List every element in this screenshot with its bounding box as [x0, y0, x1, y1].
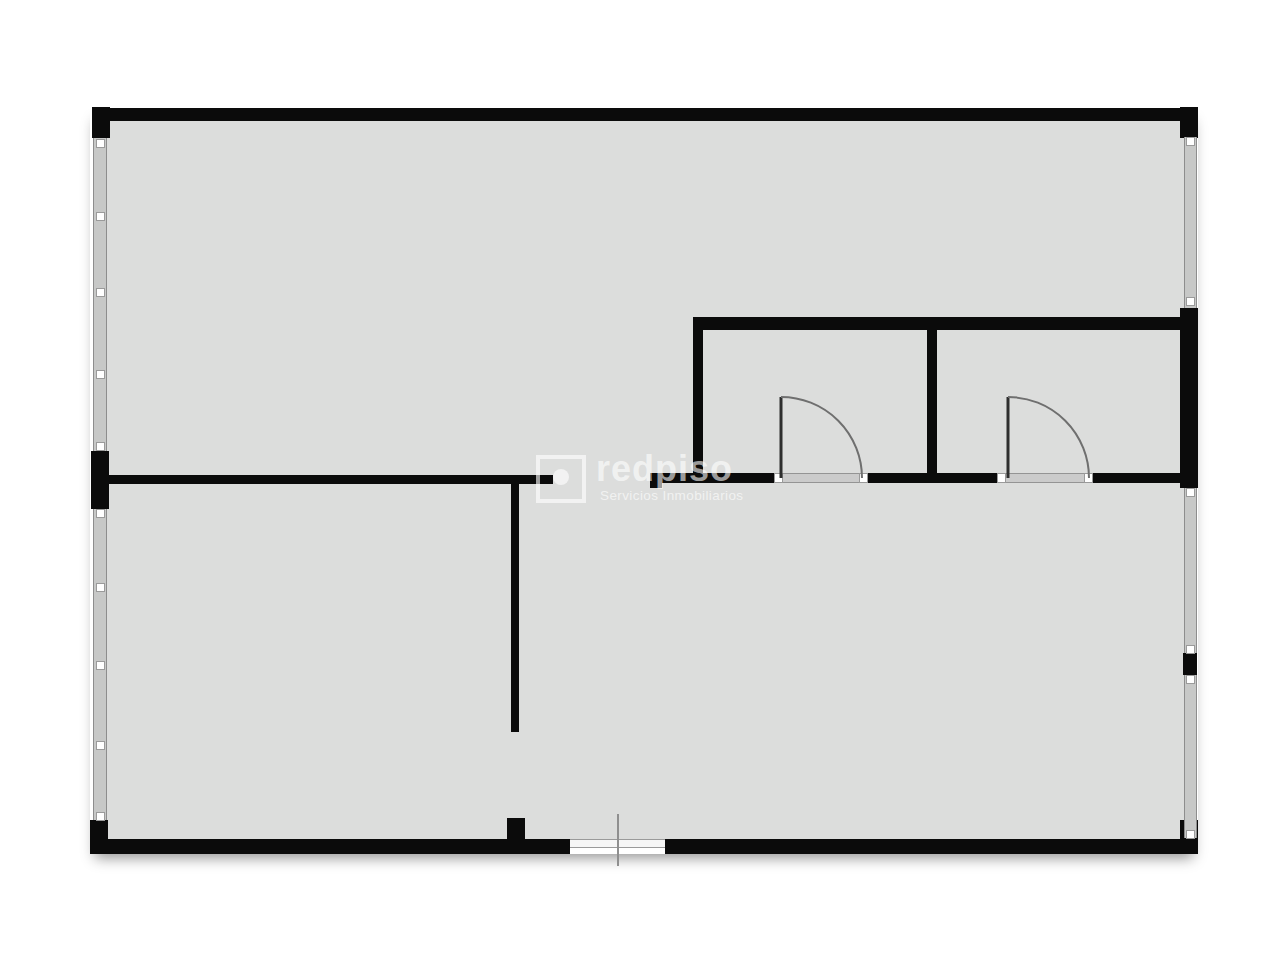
room1-door-swing-arc: [781, 397, 862, 478]
door-swing-layer: [0, 0, 1280, 960]
floorplan-page: redpiso Servicios Inmobiliarios: [0, 0, 1280, 960]
floor-plan: redpiso Servicios Inmobiliarios: [0, 0, 1280, 960]
room2-door-swing-arc: [1008, 397, 1089, 478]
